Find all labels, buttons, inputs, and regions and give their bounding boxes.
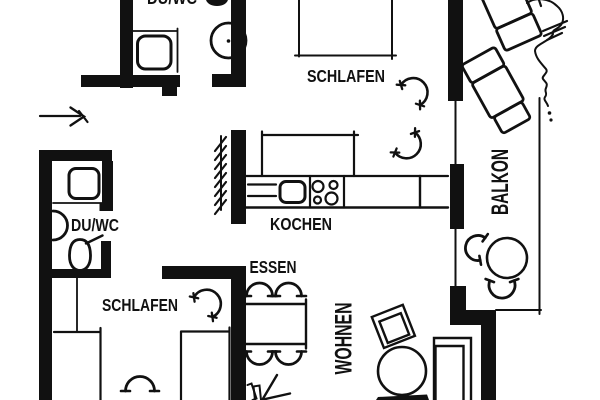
svg-text:DU/WC: DU/WC xyxy=(71,215,119,235)
svg-text:WOHNEN: WOHNEN xyxy=(331,303,358,375)
svg-text:KOCHEN: KOCHEN xyxy=(270,214,332,234)
svg-text:SCHLAFEN: SCHLAFEN xyxy=(102,295,178,315)
svg-text:DU/WC: DU/WC xyxy=(147,0,197,8)
svg-text:ESSEN: ESSEN xyxy=(250,257,297,277)
svg-text:SCHLAFEN: SCHLAFEN xyxy=(307,66,385,86)
svg-text:BALKON: BALKON xyxy=(487,149,514,215)
